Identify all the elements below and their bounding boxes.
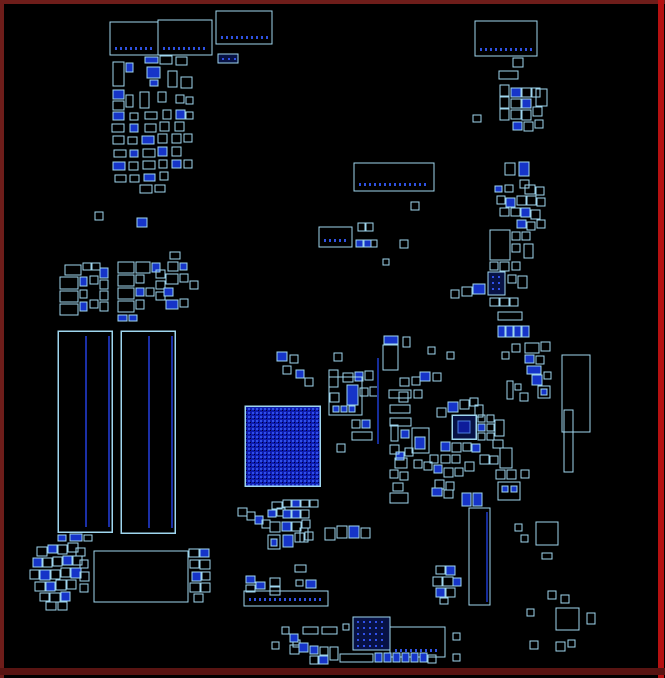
component-filled [356,240,363,247]
component-filled [511,486,517,492]
component-filled [158,147,167,156]
component-filled [292,500,300,507]
chip-small [488,272,505,295]
component-filled [453,578,461,586]
component-filled [341,406,347,412]
component-filled [129,315,137,321]
component-filled [527,366,541,374]
component-filled [145,57,158,63]
component-filled [172,160,181,168]
component-filled [384,336,398,344]
border-bottom [0,668,665,675]
component-filled [192,572,201,581]
border-top [0,0,665,4]
component-filled [147,67,160,78]
component-filled [415,437,425,449]
component-filled [522,99,531,108]
component-filled [473,284,485,294]
border-left [0,0,4,678]
component-filled [58,535,66,541]
component-filled [347,385,358,405]
pin-line [486,512,488,602]
board-background [0,0,665,678]
component-filled [113,90,124,99]
component-filled [432,488,442,496]
component-filled [283,510,291,518]
component-filled [441,442,450,451]
component-filled [176,110,185,119]
component-filled [256,582,265,589]
component-filled [61,592,70,601]
component-filled [513,122,522,130]
component-filled [70,534,82,541]
component-filled [150,80,158,86]
chip-qfn [452,415,476,439]
component-filled [136,288,144,296]
component-filled [80,277,87,286]
component-filled [420,372,430,381]
component-filled [511,88,521,97]
component-filled [375,653,382,662]
component-filled [48,545,57,553]
component-filled [296,370,304,378]
component-filled [33,558,42,567]
component-filled [420,653,427,662]
component-filled [532,375,542,385]
component-filled [277,352,287,361]
component-filled [434,465,442,473]
component-filled [446,566,455,575]
component-filled [142,136,154,144]
component-filled [519,162,529,176]
component-filled [448,402,458,412]
component-filled [137,218,147,227]
border-right [658,0,664,678]
component-filled [164,288,173,296]
component-filled [310,646,318,654]
component-filled [506,198,515,207]
component-filled [349,526,359,538]
chip-small [218,54,238,63]
component-filled [299,643,308,652]
pcb-board-canvas[interactable] [0,0,665,678]
component-filled [144,174,155,181]
component-filled [180,263,187,270]
component-filled [396,452,404,460]
component-filled [46,582,55,591]
component-filled [521,208,530,217]
component-filled [522,326,529,337]
component-filled [498,326,505,337]
component-filled [349,406,355,412]
component-filled [63,556,72,565]
component-filled [130,150,138,157]
component-filled [517,220,526,228]
component-filled [113,112,124,120]
component-filled [362,420,370,428]
component-filled [100,268,108,278]
component-filled [436,588,445,597]
component-filled [478,424,485,431]
component-filled [411,653,418,662]
component-filled [40,570,50,580]
component-filled [506,326,513,337]
component-filled [290,634,298,642]
component-filled [514,326,521,337]
component-filled [246,576,255,583]
component-filled [384,653,391,662]
component-filled [402,653,409,662]
component-filled [130,124,138,132]
component-filled [472,444,480,452]
component-filled [364,240,371,247]
component-filled [319,656,328,664]
component-filled [200,549,209,557]
component-filled [401,430,409,438]
chip-small [353,617,390,650]
component-filled [462,493,471,506]
component-filled [393,653,400,662]
component-filled [126,63,133,72]
component-filled [333,406,339,412]
chip-bga [245,406,320,486]
component-filled [495,186,502,192]
component-filled [306,580,316,588]
component-filled [80,302,87,311]
component-filled [271,539,277,546]
component-filled [166,300,178,309]
component-filled [292,510,300,518]
component-filled [502,486,508,492]
pin-line [377,358,379,444]
component-filled [113,162,125,170]
component-filled [541,389,547,395]
boardview-window [0,0,665,678]
component-filled [282,522,291,531]
component-filled [283,535,293,547]
component-filled [118,315,127,321]
component-filled [525,355,534,363]
component-filled [473,493,482,506]
component-filled [268,510,276,517]
